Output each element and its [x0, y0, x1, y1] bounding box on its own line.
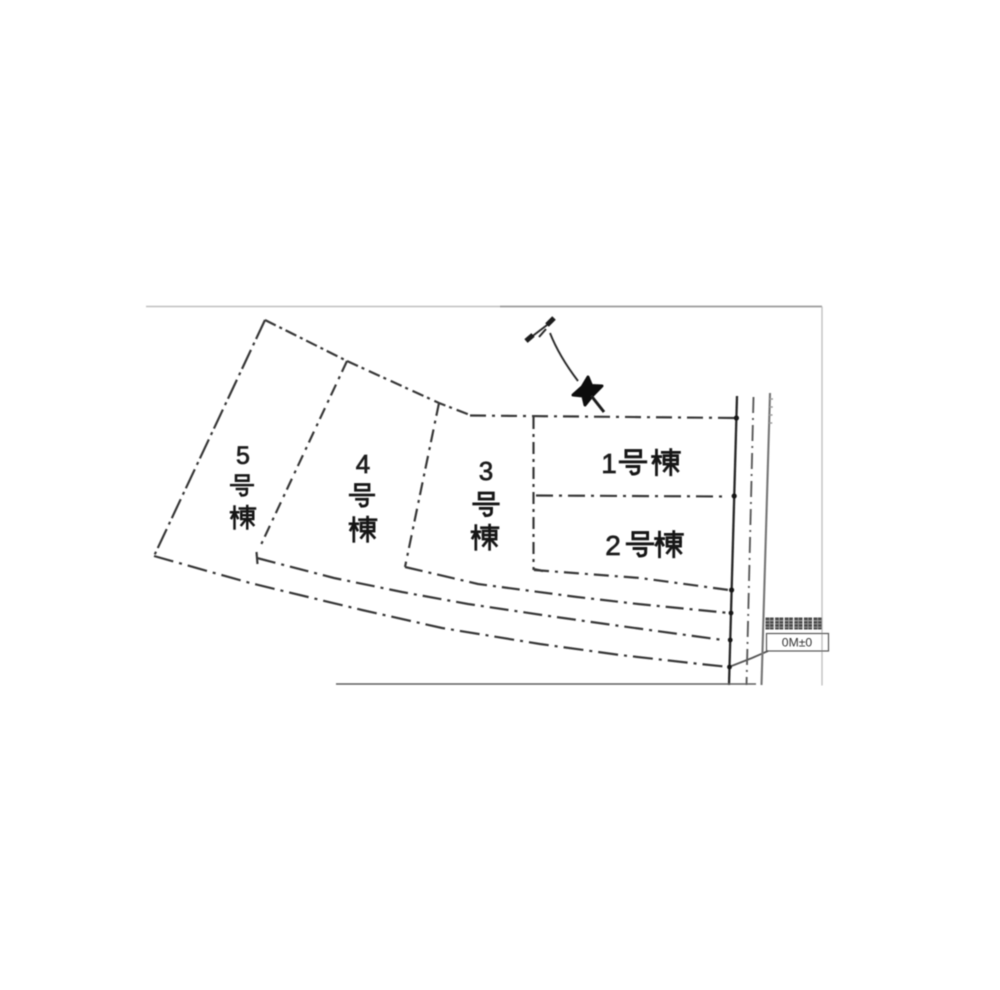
svg-text:4: 4 — [356, 449, 370, 479]
svg-text:0M±0: 0M±0 — [782, 636, 813, 650]
svg-text:2: 2 — [605, 530, 621, 561]
svg-text:1: 1 — [601, 448, 617, 479]
svg-text:3: 3 — [479, 456, 493, 486]
svg-text:5: 5 — [236, 442, 250, 470]
